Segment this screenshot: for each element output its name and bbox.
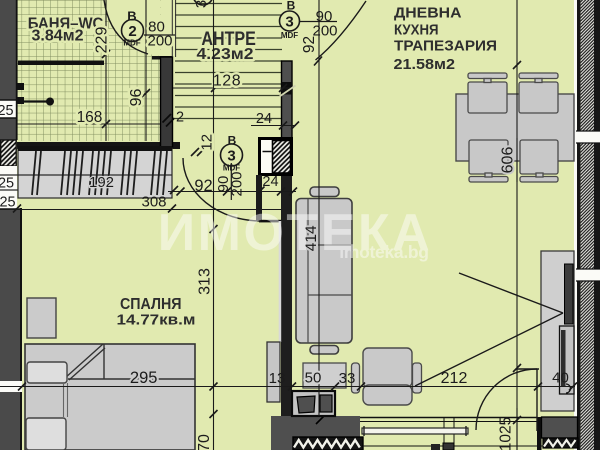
svg-text:33: 33 bbox=[339, 370, 356, 387]
svg-text:В: В bbox=[228, 134, 237, 148]
svg-text:70: 70 bbox=[196, 434, 213, 450]
svg-text:606: 606 bbox=[500, 147, 517, 174]
svg-text:92: 92 bbox=[194, 177, 212, 195]
svg-text:14.77кв.м: 14.77кв.м bbox=[117, 312, 196, 329]
svg-text:КУХНЯ: КУХНЯ bbox=[394, 23, 439, 39]
svg-text:3.84м2: 3.84м2 bbox=[32, 28, 84, 45]
svg-text:СПАЛНЯ: СПАЛНЯ bbox=[120, 296, 182, 313]
svg-text:3: 3 bbox=[285, 14, 293, 31]
svg-text:192: 192 bbox=[89, 174, 114, 191]
svg-text:imoteka.bg: imoteka.bg bbox=[339, 242, 428, 262]
svg-text:2: 2 bbox=[128, 23, 136, 40]
svg-text:2: 2 bbox=[176, 110, 184, 126]
svg-text:229: 229 bbox=[94, 27, 111, 54]
svg-text:ДНЕВНА: ДНЕВНА bbox=[394, 5, 462, 21]
svg-text:40: 40 bbox=[552, 370, 569, 387]
svg-text:96: 96 bbox=[128, 89, 145, 107]
svg-text:25: 25 bbox=[0, 176, 14, 192]
svg-text:4.23м2: 4.23м2 bbox=[197, 46, 254, 63]
svg-text:21.58м2: 21.58м2 bbox=[394, 57, 456, 73]
svg-text:25: 25 bbox=[0, 103, 14, 119]
svg-text:50: 50 bbox=[305, 370, 322, 387]
svg-text:MDF: MDF bbox=[123, 39, 140, 48]
svg-text:В: В bbox=[127, 9, 136, 24]
svg-text:ТРАПЕЗАРИЯ: ТРАПЕЗАРИЯ bbox=[394, 39, 497, 55]
svg-text:12: 12 bbox=[199, 134, 216, 151]
svg-text:24: 24 bbox=[262, 174, 278, 190]
svg-text:25: 25 bbox=[0, 195, 16, 211]
svg-text:В: В bbox=[287, 0, 296, 13]
svg-text:168: 168 bbox=[77, 109, 103, 126]
svg-text:3: 3 bbox=[227, 148, 235, 165]
svg-text:1025: 1025 bbox=[498, 417, 515, 450]
svg-text:24: 24 bbox=[256, 111, 272, 127]
svg-text:313: 313 bbox=[197, 268, 214, 295]
svg-text:212: 212 bbox=[441, 370, 468, 387]
svg-text:MDF: MDF bbox=[281, 31, 298, 40]
svg-text:92: 92 bbox=[301, 36, 318, 53]
svg-text:13: 13 bbox=[269, 370, 286, 387]
svg-text:295: 295 bbox=[130, 369, 158, 387]
svg-text:128: 128 bbox=[213, 73, 241, 90]
